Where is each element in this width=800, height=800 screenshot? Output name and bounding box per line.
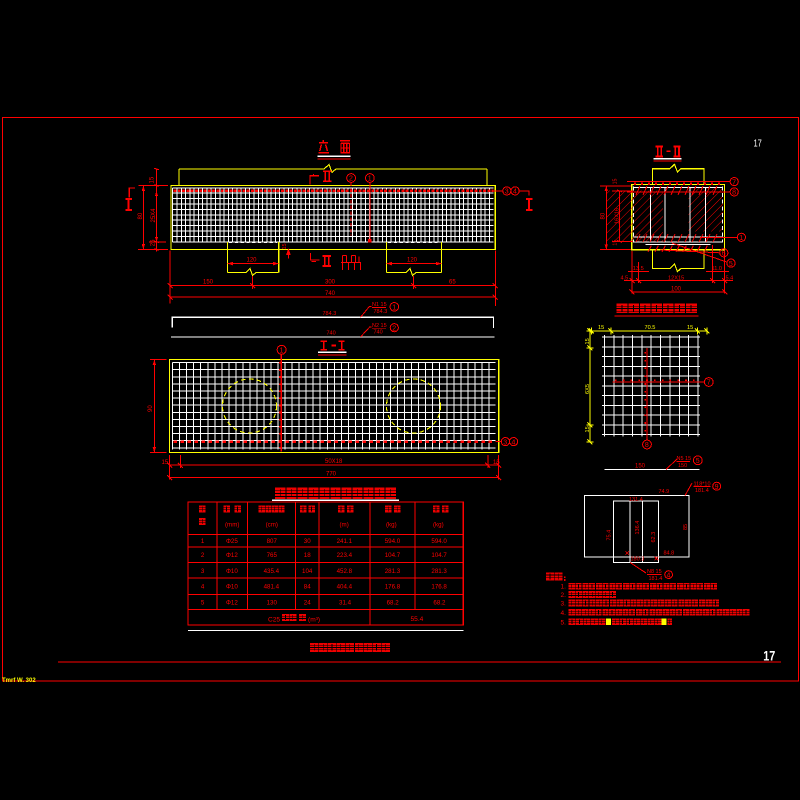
svg-text:1.: 1. [561, 584, 567, 591]
svg-text:131.4: 131.4 [629, 497, 643, 503]
svg-text:31.4: 31.4 [339, 600, 352, 607]
svg-text:30: 30 [304, 538, 311, 545]
svg-text:85: 85 [683, 524, 689, 530]
svg-text:15: 15 [150, 176, 156, 183]
svg-text:150: 150 [203, 279, 214, 285]
svg-text:180.3: 180.3 [631, 557, 645, 563]
svg-text:4: 4 [513, 189, 517, 196]
svg-text:55.4: 55.4 [411, 616, 424, 623]
svg-text:74.9: 74.9 [659, 489, 670, 495]
svg-text:120: 120 [247, 257, 258, 263]
svg-text:25: 25 [151, 239, 157, 246]
svg-text:740: 740 [325, 291, 336, 297]
svg-text:404.4: 404.4 [337, 584, 353, 591]
svg-text:84: 84 [304, 584, 311, 591]
svg-text:5.: 5. [561, 619, 567, 626]
svg-text:1: 1 [392, 305, 396, 312]
svg-text:784.3: 784.3 [374, 309, 388, 315]
svg-text:4: 4 [512, 439, 516, 446]
svg-text:12X15: 12X15 [668, 275, 684, 281]
svg-text:181.4: 181.4 [649, 576, 663, 582]
svg-text:16X16: 16X16 [614, 208, 620, 224]
svg-text:(kg): (kg) [433, 522, 444, 529]
svg-text:7: 7 [732, 179, 736, 186]
svg-text:15: 15 [585, 338, 591, 344]
svg-text:1: 1 [368, 176, 372, 183]
svg-text:(cm): (cm) [266, 522, 278, 529]
svg-text:90: 90 [148, 405, 154, 412]
svg-text:4: 4 [667, 572, 671, 579]
svg-text:150: 150 [678, 463, 687, 469]
svg-text:80: 80 [600, 212, 606, 219]
svg-text:176.8: 176.8 [385, 584, 401, 591]
svg-text:5: 5 [696, 458, 700, 465]
svg-text:130: 130 [267, 600, 278, 607]
svg-text:Φ10: Φ10 [226, 584, 238, 591]
svg-text:435.4: 435.4 [264, 568, 280, 575]
svg-text:50X18: 50X18 [325, 459, 343, 465]
svg-text:18: 18 [304, 552, 311, 559]
svg-text:15: 15 [613, 178, 619, 184]
svg-text:25X4: 25X4 [151, 208, 157, 223]
svg-text:223.4: 223.4 [337, 552, 353, 559]
svg-text:3: 3 [503, 439, 507, 446]
svg-text:300: 300 [325, 279, 336, 285]
svg-text:80: 80 [138, 212, 144, 219]
svg-text:594.0: 594.0 [385, 538, 401, 545]
svg-text:15: 15 [585, 426, 591, 432]
svg-text:765: 765 [267, 552, 278, 559]
svg-text:3.: 3. [561, 601, 567, 608]
svg-text:13.5: 13.5 [633, 266, 644, 272]
svg-text:65: 65 [449, 279, 456, 285]
svg-text:150: 150 [635, 464, 646, 470]
svg-text:2.: 2. [561, 592, 567, 599]
svg-text:15: 15 [687, 325, 693, 331]
svg-text:120: 120 [407, 257, 418, 263]
svg-text:15: 15 [282, 243, 288, 249]
svg-text:281.3: 281.3 [431, 568, 447, 575]
svg-text:17: 17 [754, 138, 762, 149]
svg-text:3: 3 [505, 189, 509, 196]
svg-text:4: 4 [201, 584, 205, 591]
svg-text:9: 9 [715, 484, 719, 491]
svg-text:Φ10: Φ10 [226, 568, 238, 575]
svg-text:(m): (m) [340, 522, 349, 529]
svg-text:2: 2 [201, 552, 205, 559]
svg-text:5.4: 5.4 [726, 275, 734, 281]
svg-text:181.4: 181.4 [695, 488, 709, 494]
svg-text:62.3: 62.3 [651, 532, 657, 543]
svg-text:740: 740 [327, 330, 336, 336]
svg-text:Φ12: Φ12 [226, 600, 238, 607]
svg-text:68.2: 68.2 [387, 600, 400, 607]
svg-text:1: 1 [739, 235, 743, 242]
svg-text:807: 807 [267, 538, 278, 545]
svg-text:Φ25: Φ25 [226, 538, 238, 545]
svg-text:452.8: 452.8 [337, 568, 353, 575]
svg-text:15: 15 [613, 240, 619, 246]
svg-text:7: 7 [707, 380, 711, 387]
svg-text:8: 8 [732, 190, 736, 197]
svg-text:15: 15 [493, 460, 500, 466]
svg-text:5: 5 [201, 600, 205, 607]
svg-text:Tmrf W. 302: Tmrf W. 302 [2, 678, 36, 684]
svg-text:6: 6 [722, 251, 726, 258]
svg-text:100: 100 [671, 287, 682, 293]
svg-text:241.1: 241.1 [337, 538, 353, 545]
svg-text:11.0: 11.0 [712, 266, 722, 272]
svg-text:136.4: 136.4 [635, 521, 641, 535]
svg-text:68.2: 68.2 [433, 600, 446, 607]
svg-text:176.8: 176.8 [431, 584, 447, 591]
svg-text:17: 17 [763, 648, 775, 663]
svg-text:104: 104 [302, 568, 313, 575]
svg-text:1: 1 [201, 538, 205, 545]
svg-text:770: 770 [326, 471, 337, 477]
svg-text:1: 1 [280, 348, 284, 355]
svg-text:24: 24 [304, 600, 311, 607]
svg-text:594.0: 594.0 [431, 538, 447, 545]
svg-text:740: 740 [374, 330, 383, 336]
svg-text:84.8: 84.8 [664, 550, 675, 556]
svg-text:5: 5 [729, 261, 733, 268]
svg-text:(kg): (kg) [386, 522, 397, 529]
svg-text:4.: 4. [561, 610, 567, 617]
svg-text:C25: C25 [268, 617, 280, 624]
svg-text:8: 8 [645, 442, 649, 449]
svg-text:2: 2 [392, 325, 396, 332]
svg-text:4.5: 4.5 [621, 275, 629, 281]
svg-text:Φ12: Φ12 [226, 552, 238, 559]
svg-text:15: 15 [598, 325, 604, 331]
svg-text:104.7: 104.7 [385, 552, 401, 559]
svg-text:2: 2 [349, 176, 353, 183]
svg-text:3: 3 [201, 568, 205, 575]
svg-text:481.4: 481.4 [264, 584, 280, 591]
svg-text:70.5: 70.5 [645, 325, 656, 331]
svg-text:6X5: 6X5 [585, 384, 591, 394]
svg-text:784.3: 784.3 [323, 311, 337, 317]
svg-text:(mm): (mm) [225, 522, 239, 529]
svg-text:281.3: 281.3 [385, 568, 401, 575]
svg-text:15: 15 [162, 460, 169, 466]
svg-text:(m³): (m³) [308, 617, 320, 624]
svg-text:75.4: 75.4 [607, 530, 613, 541]
svg-text:104.7: 104.7 [431, 552, 447, 559]
